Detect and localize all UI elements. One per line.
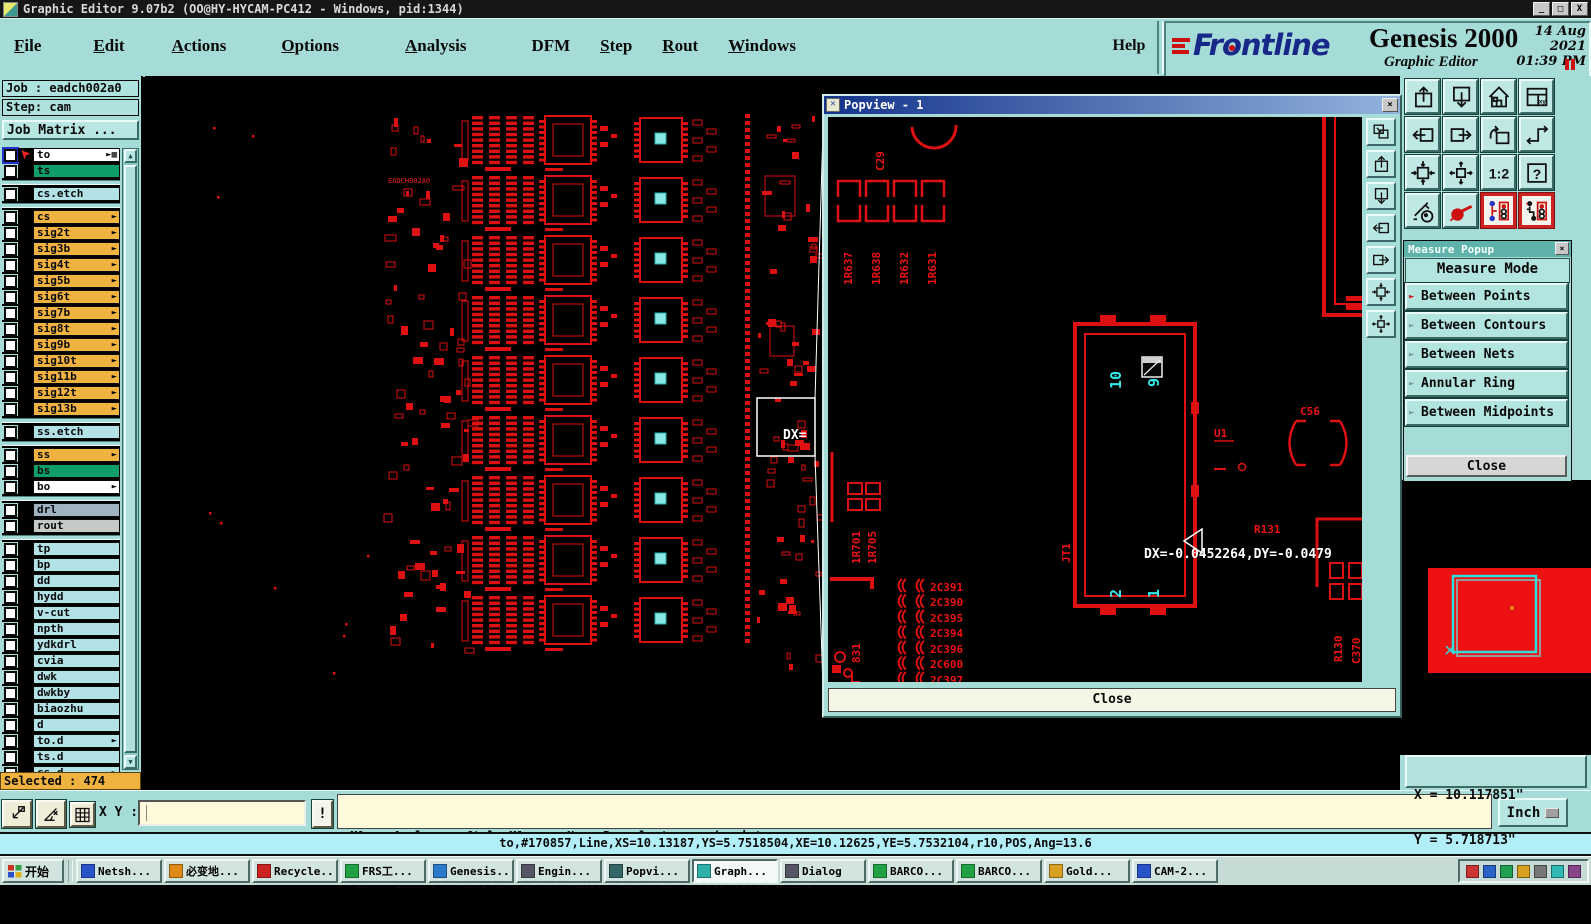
layer-row-sig13b[interactable]: sig13b►	[2, 402, 120, 416]
layer-row-ss[interactable]: ss►	[2, 448, 120, 462]
task-button-recycle[interactable]: Recycle...	[252, 859, 338, 883]
active-layer-cell[interactable]	[18, 226, 33, 240]
layer-checkbox-cell[interactable]	[2, 574, 18, 588]
layer-name[interactable]: dwk	[33, 670, 120, 684]
menu-options[interactable]: Options	[281, 36, 339, 56]
active-layer-cell[interactable]	[18, 322, 33, 336]
layer-row-biaozhu[interactable]: biaozhu	[2, 702, 120, 716]
layer-checkbox[interactable]	[4, 575, 17, 588]
layer-checkbox[interactable]	[4, 259, 17, 272]
layer-row-sig11b[interactable]: sig11b►	[2, 370, 120, 384]
task-button-popvi[interactable]: Popvi...	[604, 859, 690, 883]
task-button-barco[interactable]: BARCO...	[956, 859, 1042, 883]
layer-checkbox-cell[interactable]	[2, 425, 18, 439]
task-label: Graph...	[714, 865, 767, 878]
active-layer-cell[interactable]	[18, 519, 33, 533]
svg-text:?: ?	[1532, 166, 1541, 182]
layer-name[interactable]: bo►	[33, 480, 120, 494]
menu-windows[interactable]: Windows	[728, 36, 796, 56]
layer-checkbox-cell[interactable]	[2, 718, 18, 732]
active-layer-cell[interactable]	[18, 164, 33, 178]
active-layer-cell[interactable]	[18, 638, 33, 652]
layer-checkbox[interactable]	[4, 687, 17, 700]
hand-icon: ►	[112, 735, 117, 747]
layer-row-to.d[interactable]: to.d►	[2, 734, 120, 748]
layer-name[interactable]: sig13b►	[33, 402, 120, 416]
active-layer-cell[interactable]	[18, 670, 33, 684]
popview-window[interactable]: ✕ Popview - 1 × C291R6371R6381R6321R631J…	[822, 94, 1402, 718]
layer-name[interactable]: d	[33, 718, 120, 732]
option-arrow-icon: ►	[1409, 378, 1414, 390]
popview-close-icon[interactable]: ×	[1382, 98, 1398, 112]
layer-name[interactable]: to►▦	[33, 148, 120, 162]
measure-option-between-points[interactable]: ►Between Points	[1405, 283, 1568, 310]
layer-checkbox-cell[interactable]	[2, 402, 18, 416]
layer-name[interactable]: rout	[33, 519, 120, 533]
net-highlight-a-button[interactable]	[1481, 193, 1516, 228]
job-label: Job : eadch002a0	[2, 80, 139, 97]
layer-checkbox[interactable]	[4, 449, 17, 462]
svg-text:JT1: JT1	[1060, 543, 1073, 563]
layer-name[interactable]: tp	[33, 542, 120, 556]
layer-name[interactable]: cs.etch	[33, 187, 120, 201]
popview-zoom-selection-button[interactable]	[1366, 310, 1396, 338]
track-cursor-button[interactable]	[2, 800, 32, 828]
task-button-genesis[interactable]: Genesis...	[428, 859, 514, 883]
task-button-graph[interactable]: Graph...	[692, 859, 778, 883]
layer-row-npth[interactable]: npth	[2, 622, 120, 636]
layer-name[interactable]: cs►	[33, 210, 120, 224]
popview-paste-up-button[interactable]	[1366, 150, 1396, 178]
measure-close-button[interactable]: Close	[1406, 455, 1567, 477]
layer-row-dd[interactable]: dd	[2, 574, 120, 588]
layer-row-ydkdrl[interactable]: ydkdrl	[2, 638, 120, 652]
active-layer-cell[interactable]	[18, 290, 33, 304]
layer-checkbox[interactable]	[4, 307, 17, 320]
layer-checkbox[interactable]	[4, 520, 17, 533]
layer-checkbox-cell[interactable]	[2, 542, 18, 556]
layer-name[interactable]: dd	[33, 574, 120, 588]
layer-name[interactable]: biaozhu	[33, 702, 120, 716]
zoom-selection-button[interactable]	[1443, 155, 1478, 190]
layer-name[interactable]: ss►	[33, 448, 120, 462]
layer-row-ts.d[interactable]: ts.d	[2, 750, 120, 764]
active-layer-cell[interactable]	[18, 425, 33, 439]
layer-checkbox-cell[interactable]	[2, 622, 18, 636]
menu-analysis[interactable]: Analysis	[405, 36, 466, 56]
layer-name[interactable]: hydd	[33, 590, 120, 604]
layer-checkbox-cell[interactable]	[2, 226, 18, 240]
popview-toolbar	[1366, 118, 1398, 342]
layer-checkbox[interactable]	[4, 655, 17, 668]
layer-checkbox-cell[interactable]	[2, 290, 18, 304]
layer-checkbox[interactable]	[4, 481, 17, 494]
active-layer-cell[interactable]	[18, 242, 33, 256]
active-layer-cell[interactable]	[18, 654, 33, 668]
layer-row-bo[interactable]: bo►	[2, 480, 120, 494]
menu-dfm[interactable]: DFM	[531, 36, 570, 56]
layer-row-cs[interactable]: cs►	[2, 210, 120, 224]
layer-checkbox-cell[interactable]	[2, 590, 18, 604]
layer-checkbox-cell[interactable]	[2, 210, 18, 224]
layer-checkbox[interactable]	[4, 751, 17, 764]
layer-checkbox[interactable]	[4, 291, 17, 304]
layer-checkbox[interactable]	[4, 426, 17, 439]
layer-checkbox-cell[interactable]	[2, 322, 18, 336]
svg-text:1R638: 1R638	[870, 252, 883, 285]
edition-label: Graphic Editor	[1384, 54, 1478, 71]
layer-row-sig10t[interactable]: sig10t►	[2, 354, 120, 368]
layer-checkbox-cell[interactable]	[2, 242, 18, 256]
zoom-margins-icon	[1410, 160, 1436, 186]
active-layer-cell[interactable]	[18, 750, 33, 764]
layer-checkbox-cell[interactable]	[2, 670, 18, 684]
popview-close-button[interactable]: Close	[828, 688, 1396, 712]
menu-step[interactable]: Step	[600, 36, 632, 56]
scroll-down-icon[interactable]: ▼	[124, 755, 137, 769]
svg-text:1R637: 1R637	[842, 252, 855, 285]
layer-row-bs[interactable]: bs	[2, 464, 120, 478]
menu-help[interactable]: Help	[1106, 33, 1152, 59]
layer-name[interactable]: sig6t►	[33, 290, 120, 304]
layer-checkbox-cell[interactable]	[2, 464, 18, 478]
popview-pan-right-button[interactable]	[1366, 246, 1396, 274]
measure-option-annular-ring[interactable]: ►Annular Ring	[1405, 370, 1568, 397]
layer-row-hydd[interactable]: hydd	[2, 590, 120, 604]
popview-titlebar[interactable]: ✕ Popview - 1	[824, 96, 1400, 114]
layer-checkbox[interactable]	[4, 387, 17, 400]
layer-row-sig4t[interactable]: sig4t►	[2, 258, 120, 272]
layer-checkbox-cell[interactable]	[2, 338, 18, 352]
layer-checkbox[interactable]	[4, 355, 17, 368]
layer-name[interactable]: cvia	[33, 654, 120, 668]
layer-checkbox-cell[interactable]	[2, 386, 18, 400]
layer-checkbox[interactable]	[4, 371, 17, 384]
layer-row-sig8t[interactable]: sig8t►	[2, 322, 120, 336]
layer-sidebar: Job : eadch002a0 Step: cam Job Matrix ..…	[0, 76, 143, 790]
layer-name[interactable]: bp	[33, 558, 120, 572]
pan-left-button[interactable]	[1405, 117, 1440, 152]
pan-right-button[interactable]	[1443, 117, 1478, 152]
menu-edit[interactable]: Edit	[93, 36, 124, 56]
layer-row-v-cut[interactable]: v-cut	[2, 606, 120, 620]
task-button-engin[interactable]: Engin...	[516, 859, 602, 883]
layer-row-sig3b[interactable]: sig3b►	[2, 242, 120, 256]
active-layer-cell[interactable]	[18, 187, 33, 201]
layer-checkbox[interactable]	[4, 465, 17, 478]
layer-checkbox[interactable]	[4, 623, 17, 636]
layer-checkbox[interactable]	[4, 543, 17, 556]
layer-name[interactable]: sig2t►	[33, 226, 120, 240]
layer-checkbox-cell[interactable]	[2, 734, 18, 748]
layer-row-sig6t[interactable]: sig6t►	[2, 290, 120, 304]
layer-row-tp[interactable]: tp	[2, 542, 120, 556]
measure-close-icon[interactable]: ×	[1555, 242, 1569, 255]
layer-row-dwkby[interactable]: dwkby	[2, 686, 120, 700]
layer-checkbox[interactable]	[4, 639, 17, 652]
active-layer-cell[interactable]	[18, 370, 33, 384]
measure-probe-button[interactable]	[1443, 193, 1478, 228]
task-icon	[1049, 864, 1063, 878]
active-layer-cell[interactable]	[18, 464, 33, 478]
layer-checkbox-cell[interactable]	[2, 606, 18, 620]
job-matrix-button[interactable]: Job Matrix ...	[2, 120, 139, 140]
layer-name[interactable]: sig12t►	[33, 386, 120, 400]
main-canvas[interactable]: EADCH002A0DX= ✕ Popview - 1 × C291R6371R…	[145, 76, 1400, 790]
measure-option-between-midpoints[interactable]: ►Between Midpoints	[1405, 399, 1568, 426]
layer-name[interactable]: ydkdrl	[33, 638, 120, 652]
divider	[68, 860, 73, 882]
layer-checkbox-cell[interactable]	[2, 187, 18, 201]
active-layer-cell[interactable]	[18, 338, 33, 352]
layer-name[interactable]: to.d►	[33, 734, 120, 748]
close-button[interactable]: X	[1571, 2, 1588, 16]
zoom-selection-icon	[1448, 160, 1474, 186]
layer-name[interactable]: bs	[33, 464, 120, 478]
layer-checkbox[interactable]	[4, 719, 17, 732]
frontline-logo: Frontline	[1172, 31, 1330, 60]
layer-row-sig9b[interactable]: sig9b►	[2, 338, 120, 352]
layer-checkbox[interactable]	[4, 243, 17, 256]
home-button[interactable]	[1481, 79, 1516, 114]
layer-checkbox[interactable]	[4, 504, 17, 517]
hand-icon: ►	[112, 371, 117, 383]
layer-row-ss.etch[interactable]: ss.etch	[2, 425, 120, 439]
popview-canvas[interactable]: C291R6371R6381R6321R631JT1U1C56R131R130C…	[828, 117, 1362, 682]
help-button[interactable]: ?	[1519, 155, 1554, 190]
task-icon	[345, 864, 359, 878]
active-layer-cell[interactable]	[18, 686, 33, 700]
paste-down-button[interactable]	[1443, 79, 1478, 114]
date-label: 14 Aug 2021	[1496, 24, 1586, 54]
layer-name[interactable]: v-cut	[33, 606, 120, 620]
layer-name[interactable]: drl	[33, 503, 120, 517]
layer-checkbox-cell[interactable]	[2, 258, 18, 272]
active-layer-cell[interactable]	[18, 402, 33, 416]
layer-checkbox-cell[interactable]	[2, 448, 18, 462]
task-button-frs[interactable]: FRS工...	[340, 859, 426, 883]
active-layer-cell[interactable]	[18, 542, 33, 556]
layer-name[interactable]: sig7b►	[33, 306, 120, 320]
menu-rout[interactable]: Rout	[662, 36, 698, 56]
layer-name[interactable]: sig10t►	[33, 354, 120, 368]
popview-window-copy-button[interactable]	[1366, 118, 1396, 146]
layer-name[interactable]: sig9b►	[33, 338, 120, 352]
window-copy-icon	[1371, 122, 1391, 142]
layer-checkbox[interactable]	[4, 227, 17, 240]
overview-minimap[interactable]	[1400, 480, 1591, 755]
task-icon	[521, 864, 535, 878]
scrollbar-thumb[interactable]	[124, 165, 137, 753]
layer-checkbox-cell[interactable]	[2, 519, 18, 533]
measure-option-between-nets[interactable]: ►Between Nets	[1405, 341, 1568, 368]
active-layer-cell[interactable]	[18, 210, 33, 224]
layer-list-scrollbar[interactable]: ▲ ▼	[122, 148, 139, 770]
active-layer-cell[interactable]	[18, 448, 33, 462]
layer-name[interactable]: ss.etch	[33, 425, 120, 439]
task-button-[interactable]: 必变地...	[164, 859, 250, 883]
layer-row-sig7b[interactable]: sig7b►	[2, 306, 120, 320]
layer-name[interactable]: sig5b►	[33, 274, 120, 288]
zoom-margins-icon	[1371, 282, 1391, 302]
hand-icon: ►	[112, 481, 117, 493]
layer-checkbox-cell[interactable]	[2, 654, 18, 668]
layer-checkbox[interactable]	[4, 403, 17, 416]
layer-row-to[interactable]: to►▦	[2, 148, 120, 162]
svg-text:9: 9	[1145, 378, 1163, 387]
graphic-tools-button[interactable]	[1405, 193, 1440, 228]
layer-checkbox[interactable]	[4, 339, 17, 352]
active-layer-cell[interactable]	[18, 148, 33, 162]
xy-label: X Y :	[99, 805, 138, 820]
popview-paste-down-button[interactable]	[1366, 182, 1396, 210]
task-button-dialog[interactable]: Dialog	[780, 859, 866, 883]
xy-input[interactable]	[138, 800, 306, 826]
layer-checkbox-cell[interactable]	[2, 503, 18, 517]
scroll-up-icon[interactable]: ▲	[124, 149, 137, 163]
layer-checkbox[interactable]	[4, 559, 17, 572]
menu-actions[interactable]: Actions	[172, 36, 227, 56]
active-layer-cell[interactable]	[18, 386, 33, 400]
layer-checkbox[interactable]	[4, 211, 17, 224]
measure-popup-titlebar[interactable]: Measure Popup	[1404, 241, 1571, 257]
active-layer-cell[interactable]	[18, 622, 33, 636]
layer-checkbox[interactable]	[4, 188, 17, 201]
task-icon	[169, 864, 183, 878]
active-layer-cell[interactable]	[18, 718, 33, 732]
layer-checkbox[interactable]	[4, 591, 17, 604]
active-layer-cell[interactable]	[18, 558, 33, 572]
layer-checkbox-cell[interactable]	[2, 750, 18, 764]
task-button-gold[interactable]: Gold...	[1044, 859, 1130, 883]
layer-checkbox-cell[interactable]	[2, 164, 18, 178]
layer-row-bp[interactable]: bp	[2, 558, 120, 572]
layer-row-rout[interactable]: rout	[2, 519, 120, 533]
layer-checkbox-cell[interactable]	[2, 306, 18, 320]
zoom-selection-icon	[1371, 314, 1391, 334]
task-button-netsh[interactable]: Netsh...	[76, 859, 162, 883]
layer-group-divider	[2, 203, 120, 208]
active-layer-cell[interactable]	[18, 354, 33, 368]
text-cursor	[146, 805, 147, 821]
angle-measure-button[interactable]	[36, 800, 66, 828]
layer-row-sig12t[interactable]: sig12t►	[2, 386, 120, 400]
active-layer-cell[interactable]	[18, 274, 33, 288]
active-layer-cell[interactable]	[18, 734, 33, 748]
menu-file[interactable]: File	[14, 36, 41, 56]
popview-pan-left-button[interactable]	[1366, 214, 1396, 242]
layer-checkbox[interactable]	[4, 149, 17, 162]
layer-checkbox[interactable]	[4, 607, 17, 620]
layer-checkbox-cell[interactable]	[2, 354, 18, 368]
svg-text:10: 10	[1107, 371, 1125, 389]
layer-group-divider	[2, 496, 120, 501]
task-button-cam2[interactable]: CAM-2...	[1132, 859, 1218, 883]
help-icon: ?	[1524, 160, 1550, 186]
layer-name[interactable]: ts	[33, 164, 120, 178]
pan-left-icon	[1410, 122, 1436, 148]
layer-checkbox-cell[interactable]	[2, 558, 18, 572]
undo-view-button[interactable]	[1481, 117, 1516, 152]
layer-row-drl[interactable]: drl	[2, 503, 120, 517]
measure-option-between-contours[interactable]: ►Between Contours	[1405, 312, 1568, 339]
layer-checkbox-cell[interactable]	[2, 274, 18, 288]
active-layer-cell[interactable]	[18, 306, 33, 320]
layer-row-sig2t[interactable]: sig2t►	[2, 226, 120, 240]
ratio-1-2-button[interactable]: 1:2	[1481, 155, 1516, 190]
layer-name[interactable]: dwkby	[33, 686, 120, 700]
layer-checkbox[interactable]	[4, 165, 17, 178]
zoom-margins-button[interactable]	[1405, 155, 1440, 190]
minimize-button[interactable]: _	[1533, 2, 1550, 16]
layer-name[interactable]: sig11b►	[33, 370, 120, 384]
window-titlebar[interactable]: Graphic Editor 9.07b2 (OO@HY-HYCAM-PC412…	[0, 0, 1591, 18]
layer-checkbox[interactable]	[4, 671, 17, 684]
grid-snap-icon	[73, 805, 92, 825]
layer-checkbox-cell[interactable]	[2, 702, 18, 716]
layer-name[interactable]: npth	[33, 622, 120, 636]
layer-row-dwk[interactable]: dwk	[2, 670, 120, 684]
active-layer-cell[interactable]	[18, 590, 33, 604]
layer-row-cs.etch[interactable]: cs.etch	[2, 187, 120, 201]
active-layer-cell[interactable]	[18, 258, 33, 272]
svg-text:R131: R131	[1254, 523, 1281, 536]
layer-name[interactable]: sig4t►	[33, 258, 120, 272]
undo-view-icon	[1486, 122, 1512, 148]
popview-zoom-margins-button[interactable]	[1366, 278, 1396, 306]
layer-row-d[interactable]: d	[2, 718, 120, 732]
maximize-button[interactable]: □	[1552, 2, 1569, 16]
grid-snap-button[interactable]	[70, 802, 95, 827]
net-highlight-b-button[interactable]	[1519, 193, 1554, 228]
serpentine-button[interactable]	[1519, 117, 1554, 152]
paste-up-button[interactable]	[1405, 79, 1440, 114]
hand-icon: ►	[112, 227, 117, 239]
svg-text:C370: C370	[1350, 638, 1362, 665]
layer-name[interactable]: sig8t►	[33, 322, 120, 336]
layer-checkbox-cell[interactable]	[2, 480, 18, 494]
layer-row-cvia[interactable]: cvia	[2, 654, 120, 668]
active-layer-cell[interactable]	[18, 606, 33, 620]
start-label: 开始	[25, 863, 49, 880]
task-button-barco[interactable]: BARCO...	[868, 859, 954, 883]
layer-checkbox[interactable]	[4, 275, 17, 288]
layer-name[interactable]: ts.d	[33, 750, 120, 764]
start-button[interactable]: 开始	[2, 859, 64, 883]
net-highlight-b-icon	[1524, 198, 1549, 224]
layer-checkbox[interactable]	[4, 703, 17, 716]
layer-row-ts[interactable]: ts	[2, 164, 120, 178]
layer-checkbox-cell[interactable]	[2, 638, 18, 652]
measure-popup[interactable]: Measure Popup × Measure Mode ►Between Po…	[1403, 240, 1572, 482]
svg-text:2C395: 2C395	[930, 612, 963, 625]
layer-checkbox[interactable]	[4, 735, 17, 748]
layer-name[interactable]: sig3b►	[33, 242, 120, 256]
layer-checkbox[interactable]	[4, 323, 17, 336]
active-layer-cell[interactable]	[18, 702, 33, 716]
window-xy-button[interactable]: xy	[1519, 79, 1554, 114]
active-layer-cell[interactable]	[18, 574, 33, 588]
layer-row-sig5b[interactable]: sig5b►	[2, 274, 120, 288]
layer-checkbox-cell[interactable]	[2, 686, 18, 700]
active-layer-cell[interactable]	[18, 480, 33, 494]
taskbar: 开始 Netsh...必变地...Recycle...FRS工...Genesi…	[0, 856, 1591, 885]
layer-checkbox-cell[interactable]	[2, 370, 18, 384]
svg-text:DX=-0.0452264,DY=-0.0479: DX=-0.0452264,DY=-0.0479	[1144, 547, 1332, 562]
layer-checkbox-cell[interactable]	[2, 148, 18, 162]
alert-button[interactable]: !	[312, 800, 333, 828]
active-layer-cell[interactable]	[18, 503, 33, 517]
